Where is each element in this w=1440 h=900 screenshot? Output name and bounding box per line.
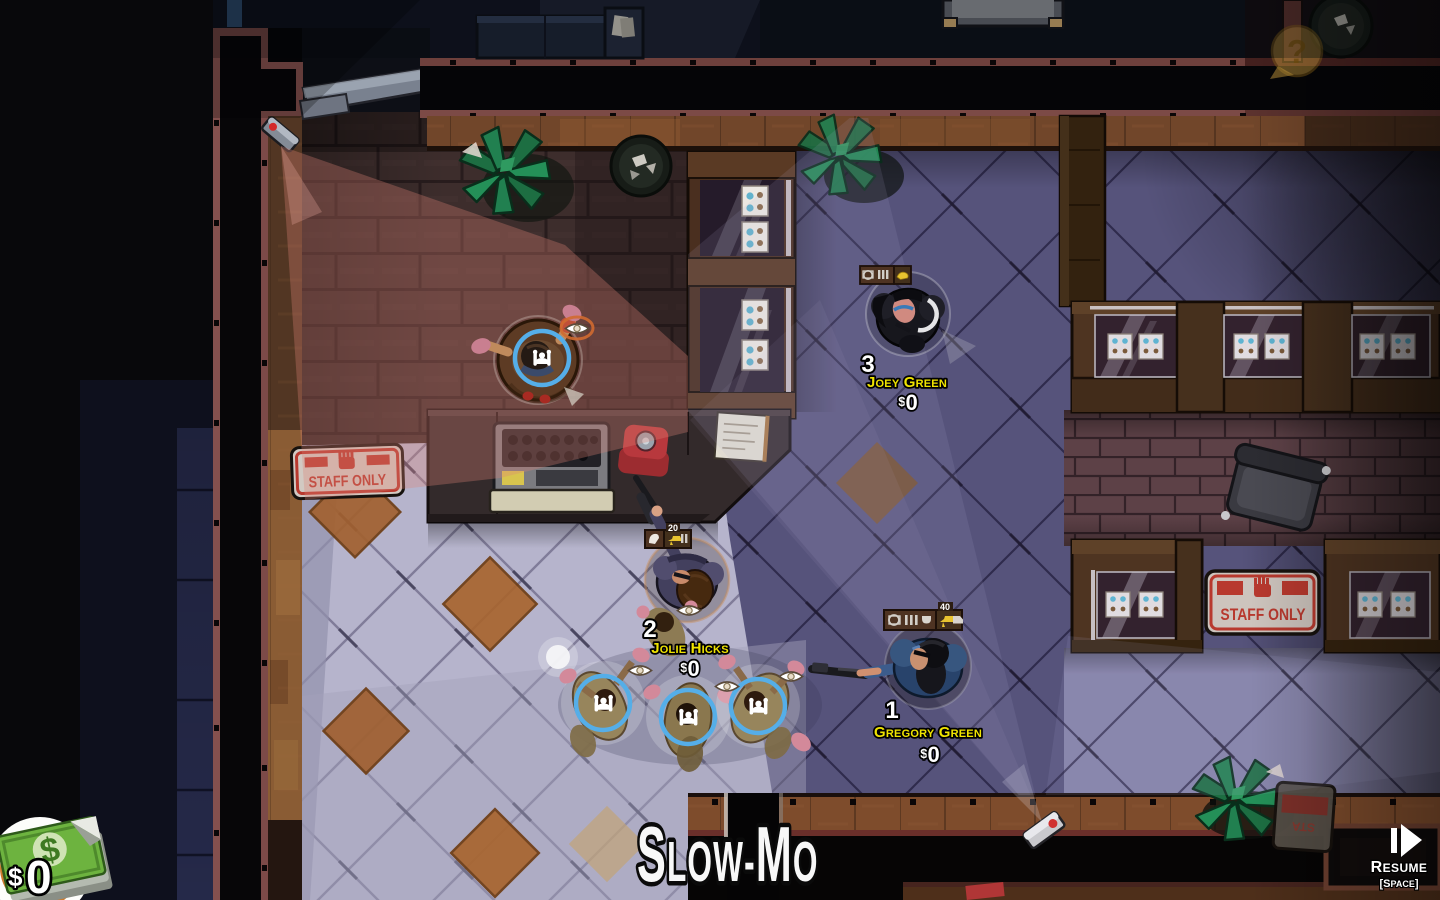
svg-text:[SPACE]: [SPACE]	[1379, 878, 1418, 890]
svg-text:1: 1	[885, 697, 898, 724]
svg-text:2: 2	[643, 616, 656, 643]
svg-text:20: 20	[668, 523, 678, 533]
svg-text:40: 40	[940, 602, 950, 612]
svg-text:0: 0	[26, 851, 52, 900]
svg-text:$: $	[8, 862, 23, 892]
svg-text:RESUME: RESUME	[1371, 859, 1428, 876]
